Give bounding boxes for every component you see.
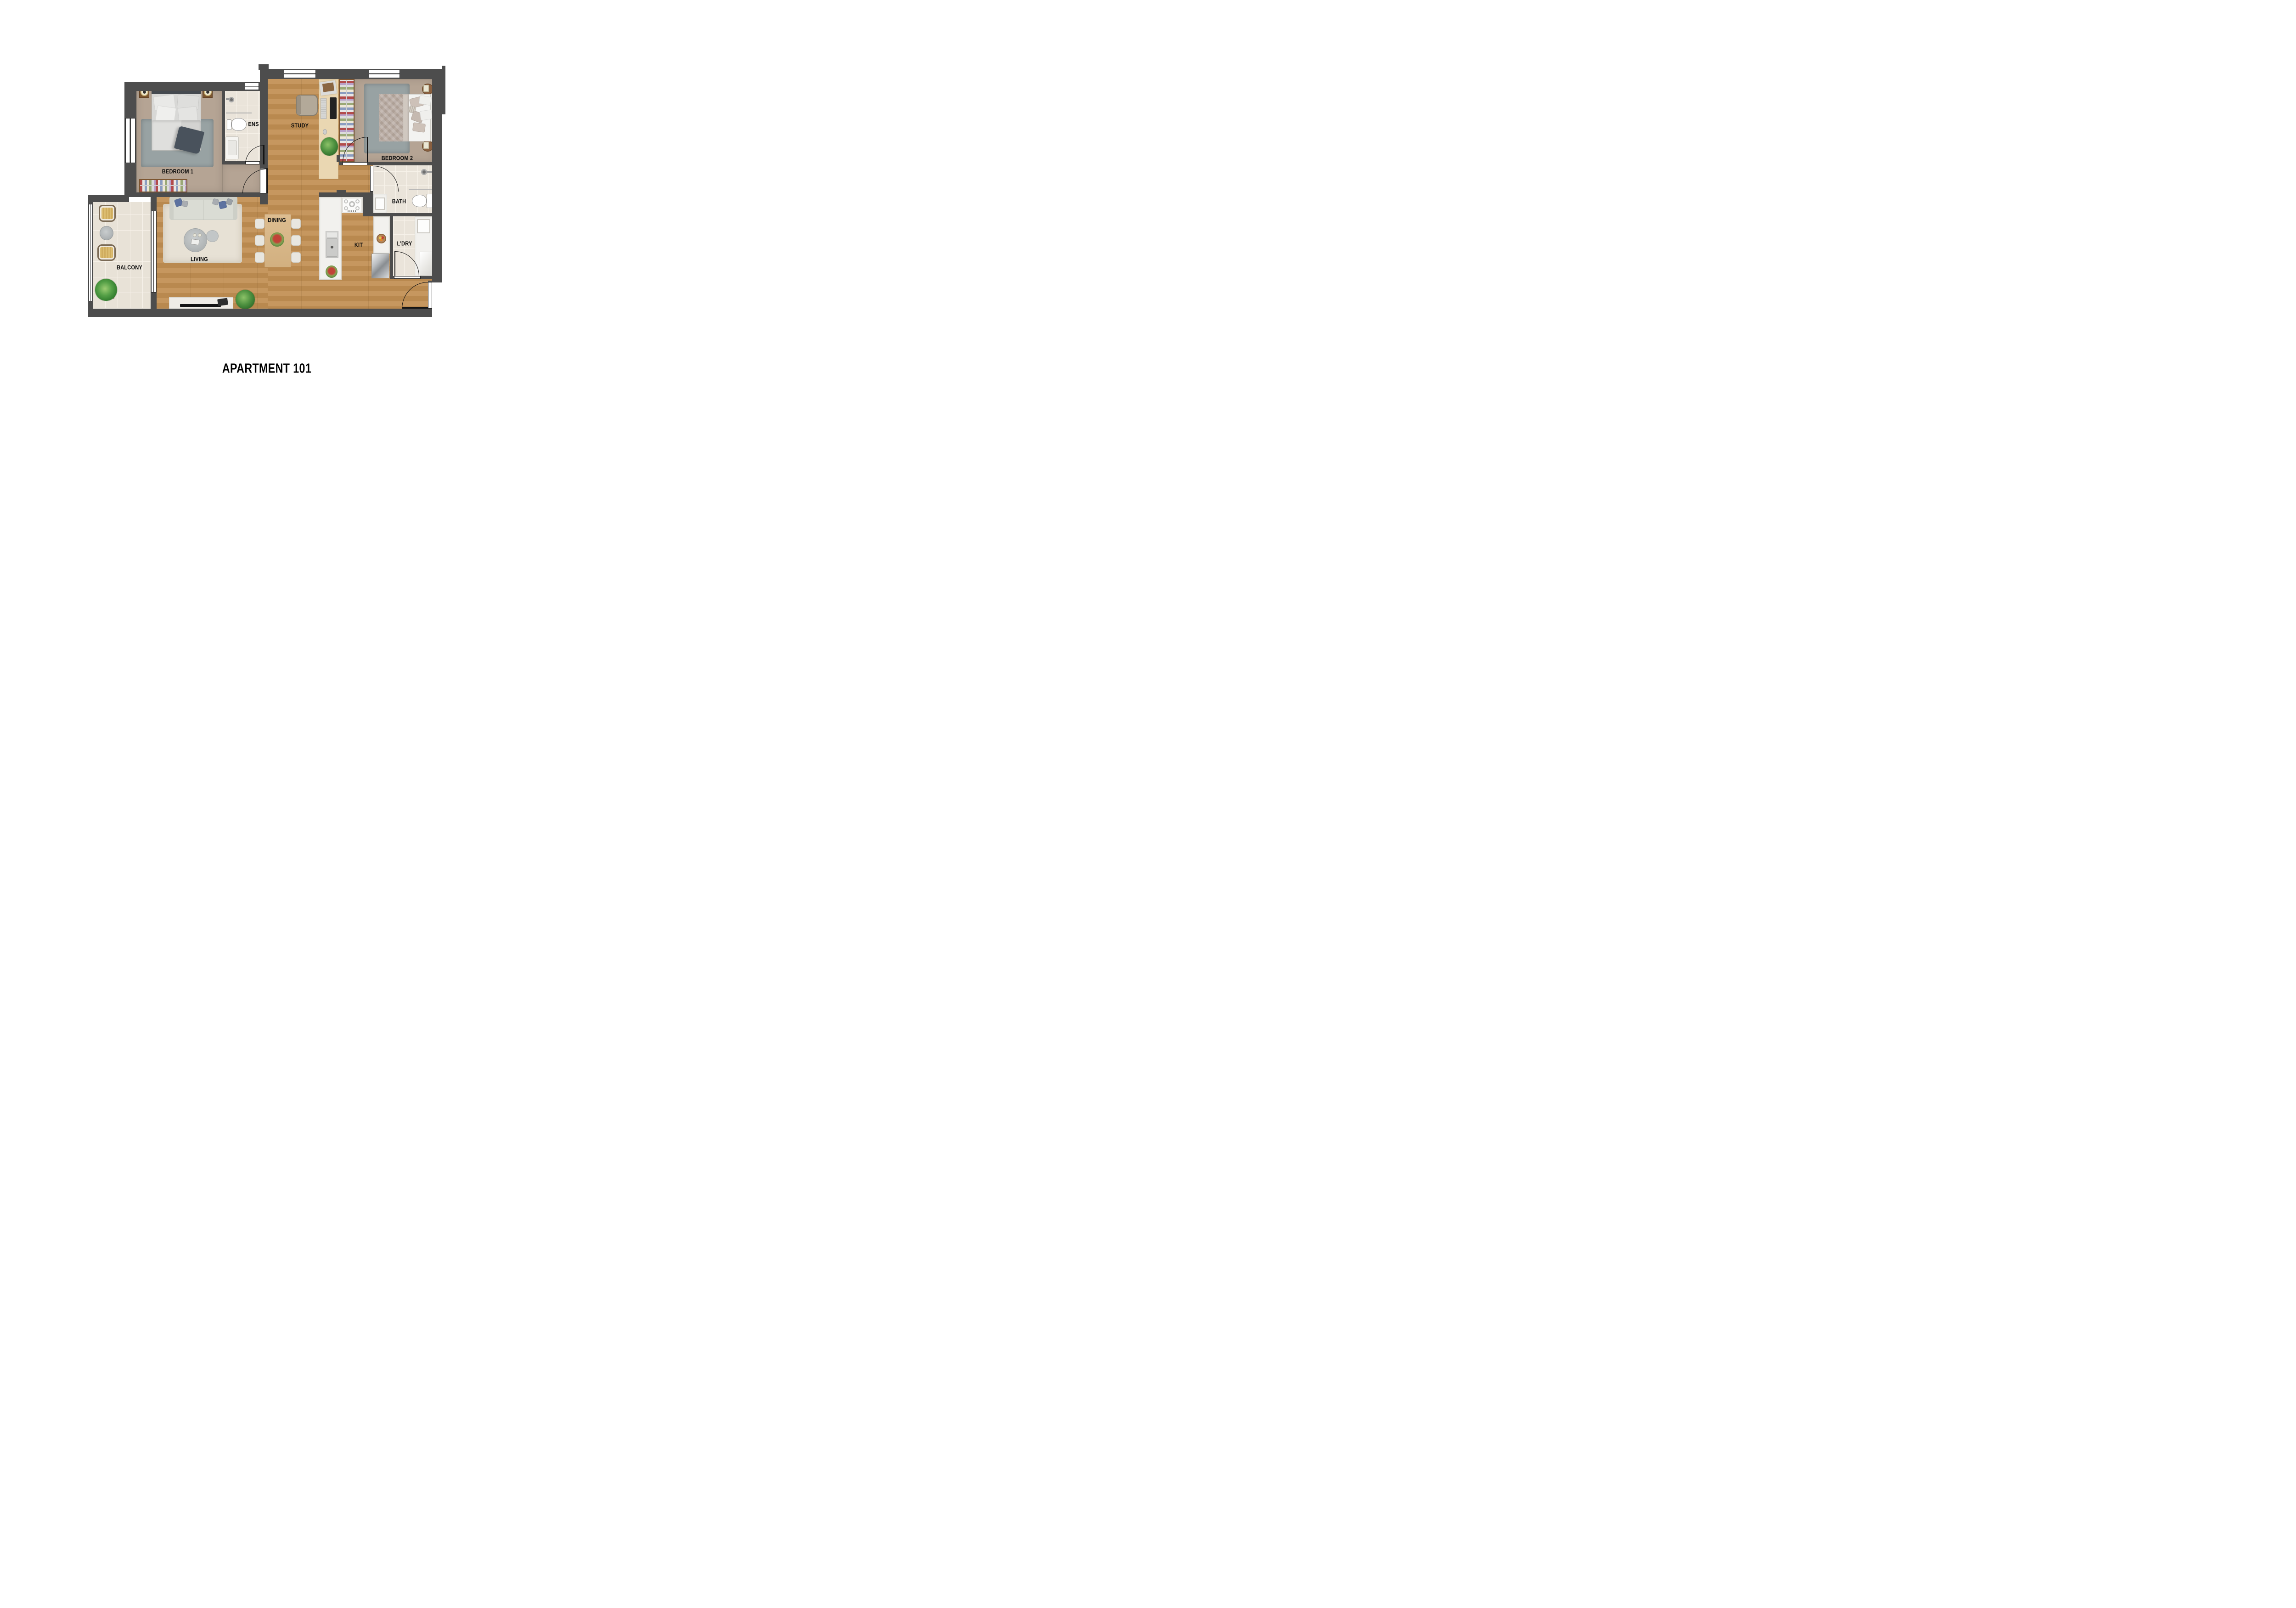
ldry-washer: [420, 252, 433, 276]
wall-kitchen-jut: [337, 190, 346, 192]
kitchen-island-flowers: [326, 265, 338, 278]
room-label-bedroom1: BEDROOM 1: [162, 168, 193, 175]
bedroom2-door-leaf-icon: [367, 137, 368, 162]
bath-toilet-bowl-icon: [412, 195, 427, 207]
bedroom1-wardrobe-rail-icon: [140, 185, 186, 186]
wall-bath-bottom: [363, 213, 434, 216]
bedroom2-book-top-icon: [423, 85, 429, 92]
cooktop-burner-icon: [349, 201, 355, 207]
ens-shower-head-icon: [229, 97, 234, 102]
study-keyboard: [321, 98, 326, 119]
kitchen-faucet-icon: [331, 246, 333, 248]
room-label-ens: ENS: [248, 121, 259, 128]
balcony-table: [100, 226, 113, 240]
window-bedroom2-top: [369, 70, 400, 78]
room-label-study: STUDY: [291, 122, 309, 129]
ldry-sink: [417, 219, 430, 233]
sofa-pillow-gray: [181, 200, 188, 207]
bath-door-leaf-icon: [370, 166, 373, 192]
dining-chair: [255, 252, 264, 263]
fruit-bowl-icon: [377, 234, 386, 243]
living-plant: [236, 290, 255, 309]
wall-jut-top-right: [442, 66, 445, 114]
bedroom2-blanket-fold: [403, 94, 409, 141]
dining-chair: [255, 235, 264, 246]
living-sofa-arm-left: [169, 196, 174, 220]
wall-balcony-top: [88, 195, 129, 202]
bedroom2-pillow: [420, 109, 433, 121]
ens-towel-rail-icon: [226, 113, 252, 113]
dining-chair: [291, 235, 301, 246]
ens-toilet-bowl-icon: [231, 118, 247, 131]
dining-chair: [255, 219, 264, 229]
floor-plan-page: BEDROOM 1 ENS STUDY BEDROOM 2 BATH L’DRY…: [0, 0, 574, 402]
coffee-cup-icon: [198, 233, 202, 237]
room-label-dining: DINING: [268, 217, 286, 224]
opening-ldry-door: [394, 276, 421, 279]
kitchen-dishwasher: [371, 254, 389, 278]
room-label-balcony: BALCONY: [117, 264, 142, 271]
ens-toilet-tank: [227, 119, 231, 130]
wall-wardrobe-stub: [337, 155, 340, 162]
ldry-door-leaf-icon: [394, 251, 395, 276]
bath-sink-basin-icon: [375, 197, 385, 210]
ens-sink-basin-icon: [228, 141, 236, 155]
dining-chair: [291, 219, 301, 229]
opening-bedroom2-door: [343, 162, 368, 165]
window-ens-top: [245, 83, 259, 90]
bedroom2-blanket: [379, 94, 404, 141]
living-sofa-arm-right: [233, 196, 237, 220]
coffee-cup-icon: [193, 233, 197, 237]
study-chair-back: [297, 96, 301, 115]
kitchen-sink-top: [326, 232, 338, 238]
hall-plant: [321, 137, 338, 156]
wall-right-outer: [432, 69, 442, 281]
balcony-chair-top-cushion: [101, 208, 113, 219]
room-label-ldry: L’DRY: [397, 240, 412, 247]
cooktop-burner-icon: [344, 199, 348, 203]
study-mouse-icon: [323, 129, 327, 135]
study-monitor: [330, 97, 337, 119]
bedroom2-pillow: [412, 122, 426, 133]
cooktop-burner-icon: [355, 206, 360, 210]
floor-plan: BEDROOM 1 ENS STUDY BEDROOM 2 BATH L’DRY…: [0, 0, 574, 402]
window-balcony-glazing: [89, 204, 92, 301]
window-balcony-slider: [151, 211, 157, 293]
tv-icon: [180, 304, 221, 307]
window-bedroom1-left: [125, 118, 135, 163]
wall-ens-left: [222, 90, 225, 161]
bath-towel-rail-icon: [409, 189, 433, 190]
wall-bath-left: [370, 192, 373, 216]
tv-console-icon: [217, 298, 228, 306]
room-label-bedroom2: BEDROOM 2: [382, 155, 413, 162]
plan-title: APARTMENT 101: [222, 361, 311, 377]
room-label-bath: BATH: [392, 198, 406, 205]
cooktop-burner-icon: [355, 199, 360, 203]
bedroom1-door-leaf-icon: [266, 169, 268, 193]
balcony-plant: [95, 279, 117, 301]
cooktop-burner-icon: [344, 206, 348, 210]
entry-door-leaf-icon: [402, 307, 428, 309]
ens-door-leaf-icon: [263, 145, 264, 164]
window-study-top: [284, 70, 316, 78]
coffee-table-small: [206, 230, 219, 242]
coffee-table-book: [191, 239, 199, 245]
balcony-chair-bottom-cushion: [100, 247, 113, 258]
cooktop-knobs-icon: [348, 210, 356, 212]
room-label-living: LIVING: [191, 256, 208, 263]
room-label-kit: KIT: [355, 242, 363, 248]
dining-chair: [291, 252, 301, 263]
wall-bottom: [88, 309, 432, 317]
opening-entry-door: [428, 282, 432, 309]
study-folder: [322, 82, 334, 92]
dining-centerpiece-flowers: [270, 232, 284, 247]
wall-ldry-left: [390, 213, 393, 279]
living-sofa-seam-icon: [203, 200, 203, 220]
bedroom2-book-bottom-icon: [423, 142, 429, 149]
